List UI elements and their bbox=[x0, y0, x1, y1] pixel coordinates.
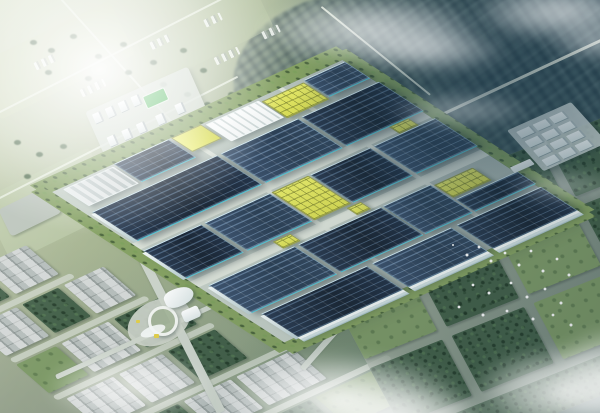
cloud bbox=[350, 28, 510, 73]
aerial-factory-render bbox=[0, 0, 600, 413]
atmospheric-veil bbox=[0, 0, 600, 413]
cloud bbox=[385, 92, 535, 128]
